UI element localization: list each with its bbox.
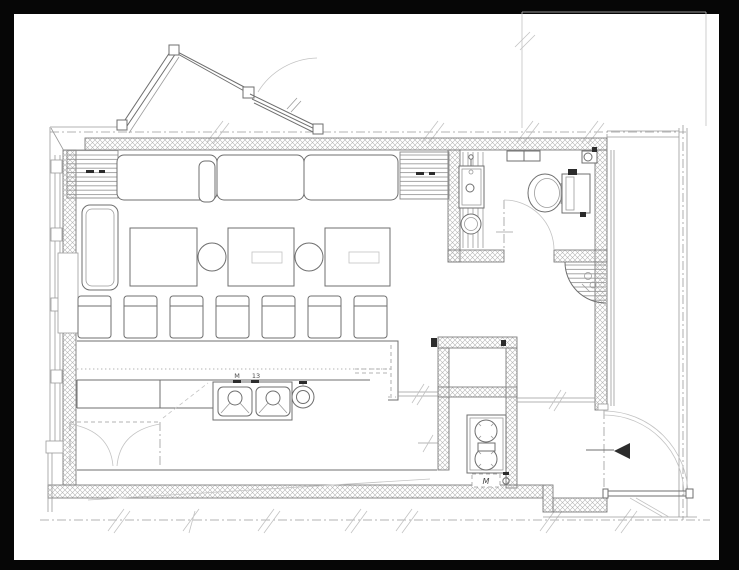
door-jamb: [598, 404, 608, 410]
table: [228, 228, 294, 286]
window-side-table: [58, 253, 78, 333]
bench-left-cushion: [86, 209, 114, 286]
door-end-block: [313, 124, 323, 134]
heater-block-right: [400, 152, 449, 199]
wall-shelf: [524, 151, 540, 161]
paper: [14, 14, 719, 560]
faucet-icon: [299, 381, 307, 384]
counter-stool: [354, 296, 387, 338]
round-stool: [295, 243, 323, 271]
bottom-wall-right: [553, 498, 607, 512]
counter-stool: [170, 296, 203, 338]
window-mullion: [51, 370, 62, 383]
gas-meter-label: M: [483, 477, 490, 486]
table: [325, 228, 390, 286]
toilet-bottom-wall-left: [448, 250, 504, 262]
wash-basin: [461, 214, 481, 234]
floorplan-drawing: M 13 M: [0, 0, 739, 570]
toilet-bowl: [528, 174, 562, 212]
glazing-apex-cap: [169, 45, 179, 55]
dining-tables: [130, 228, 390, 286]
gas-range: [467, 415, 506, 473]
window-mullion: [51, 160, 62, 173]
faucet-label-left: M: [234, 372, 240, 380]
faucet-icon: [233, 380, 241, 383]
door-hinge-block: [243, 87, 254, 98]
gas-meter-box: M: [472, 474, 500, 487]
glazing-end-cap: [117, 120, 127, 130]
top-wall: [85, 138, 607, 150]
bench-cushion: [217, 155, 304, 200]
counter-stool: [124, 296, 157, 338]
faucet-label-right: 13: [252, 372, 260, 380]
scanned-floorplan-page: M 13 M: [0, 0, 739, 570]
flush-button: [568, 169, 577, 175]
toilet-left-wall: [448, 150, 460, 262]
counter-stool: [78, 296, 111, 338]
counter-stools: [78, 296, 387, 338]
round-stool: [198, 243, 226, 271]
kitchen-room-left-wall: [438, 348, 449, 470]
counter-stool: [262, 296, 295, 338]
bottom-wall-step: [543, 485, 553, 512]
counter-stool: [216, 296, 249, 338]
bench-cushion: [304, 155, 398, 200]
kitchen-room-mid-wall: [438, 387, 517, 397]
window-mullion: [51, 228, 62, 241]
window-end-block: [46, 441, 63, 453]
heater-block-left: [67, 150, 118, 198]
wall-shelf: [507, 151, 524, 161]
kitchen-room-right-wall: [506, 348, 517, 488]
bench-armrest: [199, 161, 215, 202]
faucet-icon: [251, 380, 259, 383]
table: [130, 228, 197, 286]
grease-tray: [478, 443, 495, 451]
counter-stool: [308, 296, 341, 338]
toilet-bottom-wall-right: [554, 250, 607, 262]
